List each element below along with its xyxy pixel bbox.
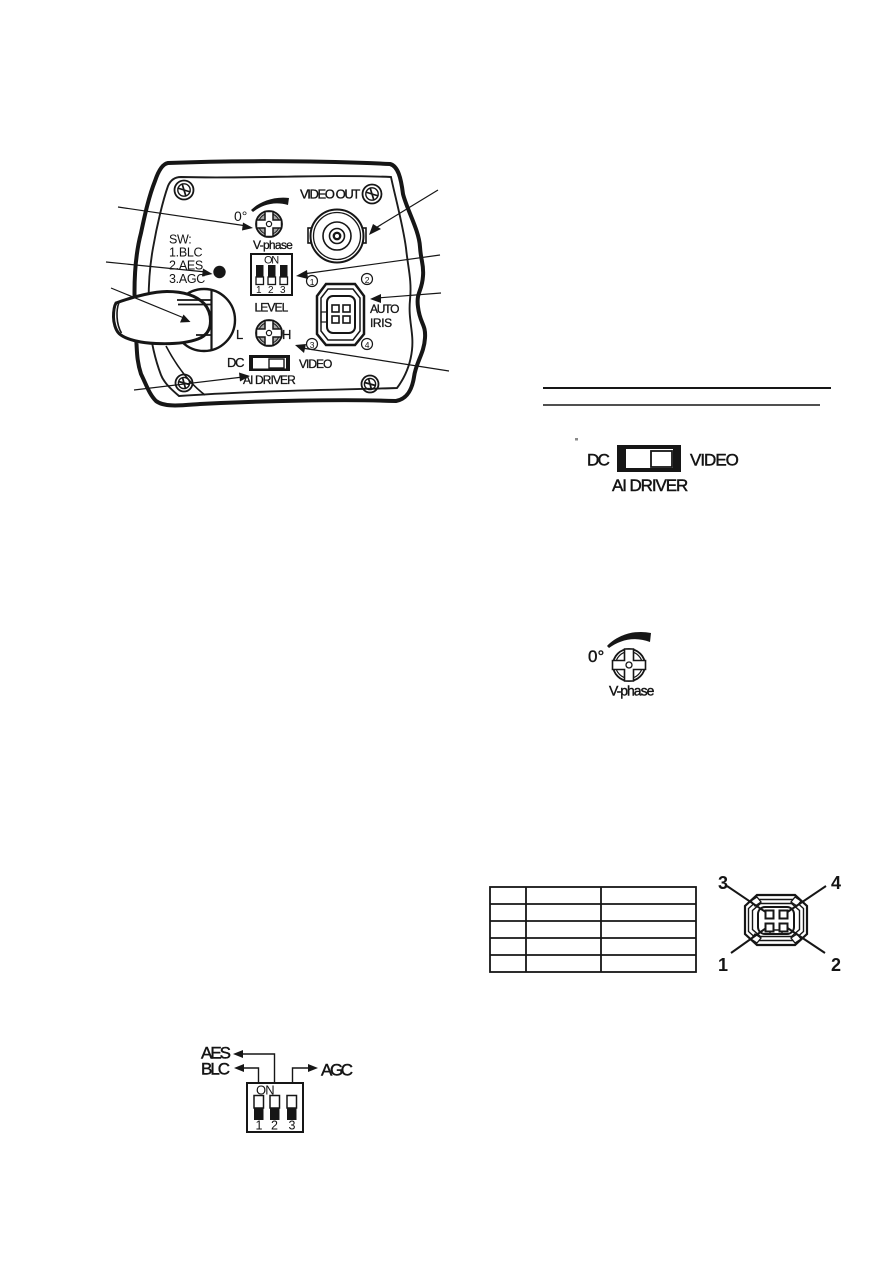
svg-text:AUTO: AUTO [370, 302, 399, 316]
svg-text:H: H [282, 327, 291, 342]
svg-text:DC: DC [227, 355, 244, 370]
svg-text:4: 4 [365, 340, 370, 350]
svg-text:IRIS: IRIS [370, 316, 392, 330]
svg-text:1.BLC: 1.BLC [169, 246, 203, 260]
svg-text:V-phase: V-phase [609, 683, 655, 699]
svg-text:AGC: AGC [321, 1061, 353, 1080]
svg-text:0°: 0° [234, 208, 247, 224]
svg-text:4: 4 [831, 873, 841, 893]
svg-text:2: 2 [268, 285, 274, 296]
svg-text:3: 3 [280, 285, 286, 296]
svg-text:VIDEO: VIDEO [690, 451, 739, 470]
svg-text:1: 1 [256, 285, 262, 296]
svg-text:VIDEO: VIDEO [299, 357, 332, 371]
svg-text:2: 2 [271, 1119, 278, 1133]
svg-text:3: 3 [289, 1119, 296, 1133]
svg-text:BLC: BLC [201, 1060, 230, 1079]
svg-text:LEVEL: LEVEL [255, 301, 289, 315]
svg-text:3: 3 [310, 340, 315, 350]
svg-text:V-phase: V-phase [253, 238, 293, 252]
svg-text:ON: ON [264, 255, 279, 267]
svg-text:3: 3 [718, 873, 728, 893]
svg-text:VIDEO OUT: VIDEO OUT [300, 187, 360, 202]
svg-text:1: 1 [256, 1119, 263, 1133]
svg-text:SW:: SW: [169, 233, 191, 247]
svg-text:1: 1 [310, 277, 315, 287]
svg-text:L: L [236, 327, 243, 342]
svg-text:2: 2 [365, 275, 370, 285]
svg-text:0°: 0° [588, 647, 604, 666]
svg-text:DC: DC [587, 451, 610, 470]
svg-text:1: 1 [718, 955, 728, 975]
svg-text:3.AGC: 3.AGC [169, 272, 205, 286]
svg-text:AI DRIVER: AI DRIVER [612, 476, 688, 495]
svg-text:2: 2 [831, 955, 841, 975]
svg-text:AI DRIVER: AI DRIVER [243, 373, 296, 387]
